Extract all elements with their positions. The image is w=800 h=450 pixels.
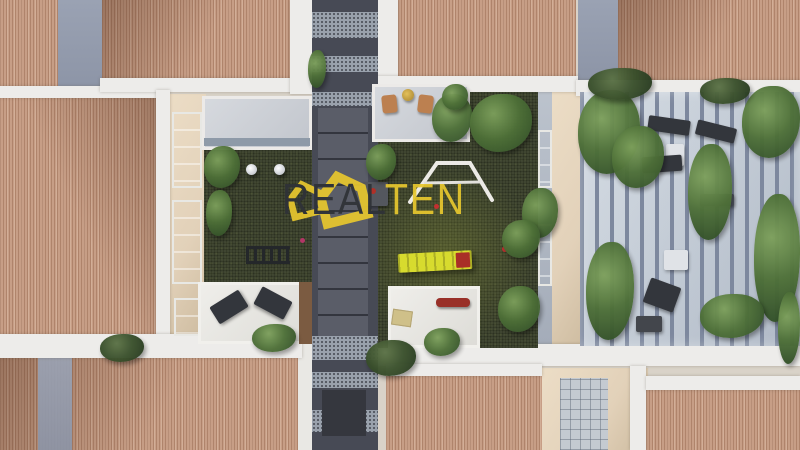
red-bench bbox=[436, 298, 470, 307]
dark-mat bbox=[322, 390, 366, 436]
blue-gray-wall bbox=[38, 358, 72, 450]
pendant-lamp bbox=[246, 164, 257, 175]
wooden-chair bbox=[381, 94, 398, 113]
terracotta-roof bbox=[102, 0, 292, 80]
parapet bbox=[156, 90, 170, 338]
planter-pot bbox=[636, 316, 662, 332]
watermark-text: REALTEN bbox=[282, 178, 466, 222]
yellow-sun-lounger bbox=[398, 250, 473, 273]
terracotta-roof bbox=[398, 0, 576, 76]
skylight-panel bbox=[391, 309, 413, 328]
watermark-text-ten: TEN bbox=[385, 175, 466, 224]
glass-balustrade bbox=[204, 138, 310, 146]
terracotta-roof bbox=[0, 0, 58, 88]
tiled-patio bbox=[560, 378, 608, 450]
pebble-paving bbox=[312, 372, 378, 388]
glass-window bbox=[174, 298, 200, 336]
pebble-paving bbox=[312, 92, 378, 106]
glass-window bbox=[172, 200, 202, 284]
wooden-chair bbox=[417, 94, 434, 114]
pebble-paving bbox=[312, 12, 378, 38]
side-table bbox=[664, 250, 688, 270]
blue-gray-wall bbox=[58, 0, 102, 94]
terracotta-roof bbox=[386, 374, 542, 450]
glass-window bbox=[538, 130, 552, 188]
aerial-render: REALTEN bbox=[0, 0, 800, 450]
terracotta-roof bbox=[0, 98, 156, 336]
glass-window bbox=[172, 112, 202, 188]
parapet bbox=[100, 78, 312, 92]
watermark-text-real: REAL bbox=[282, 175, 385, 224]
terracotta-roof bbox=[618, 0, 800, 80]
watermark-logo: REALTEN bbox=[282, 178, 496, 222]
terracotta-roof bbox=[646, 388, 800, 450]
round-table bbox=[402, 89, 414, 101]
garden-railing bbox=[246, 246, 290, 264]
parapet bbox=[630, 366, 646, 450]
red-pillow bbox=[456, 252, 471, 268]
wood-partition bbox=[299, 282, 312, 344]
parapet bbox=[646, 376, 800, 390]
